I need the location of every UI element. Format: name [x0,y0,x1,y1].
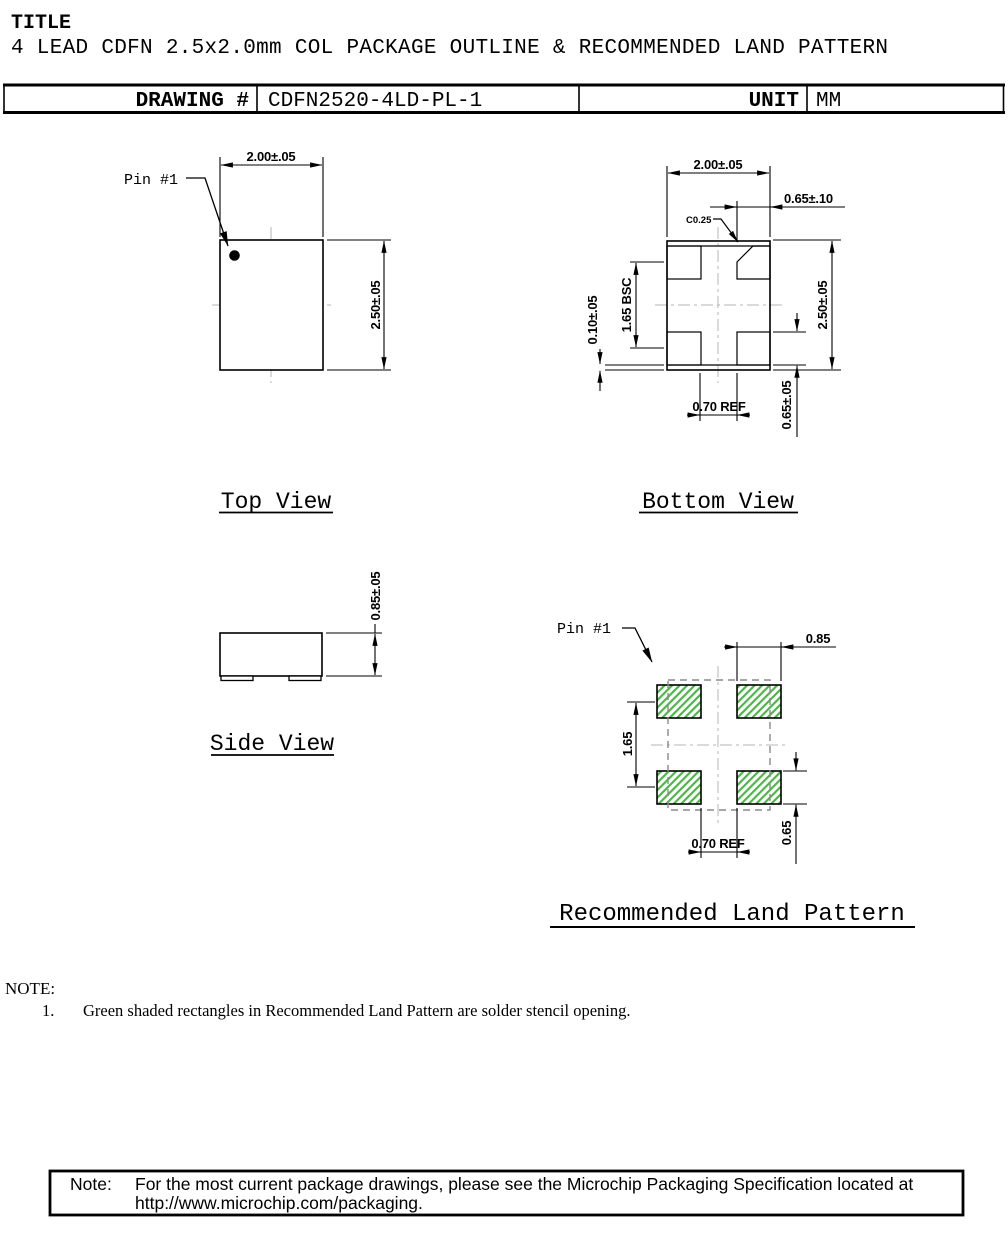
top-view-title: Top View [221,489,332,515]
stencil-pad-4 [737,685,781,718]
bottom-view-title: Bottom View [642,489,794,515]
page-title: 4 LEAD CDFN 2.5x2.0mm COL PACKAGE OUTLIN… [11,37,888,60]
bottom-dim-terminal-width: 0.65±.10 [710,191,845,242]
land-pin1-label: Pin #1 [557,621,611,638]
unit-value: MM [816,90,841,113]
footer-note-line2: http://www.microchip.com/packaging. [135,1193,423,1213]
land-pad-width-dim-text: 0.85 [806,631,831,646]
footer-note-box: Note: For the most current package drawi… [50,1171,963,1215]
top-view-dim-height: 2.50±.05 [327,240,391,370]
land-pin1-callout: Pin #1 [557,621,652,662]
thickness-dim-text: 0.85±.05 [368,572,383,621]
bottom-dim-width: 2.00±.05 [667,157,770,237]
unit-label: UNIT [749,90,799,113]
footer-note-label: Note: [70,1174,112,1194]
bottom-dim-height: 2.50±.05 [773,240,841,370]
bottom-dim-terminal-length: 0.65±.05 [773,313,806,437]
land-pad-length-dim-text: 0.65 [779,821,794,846]
chamfer-dim-text: C0.25 [686,215,712,226]
top-pin1-label: Pin #1 [124,172,178,189]
drawing-number-value: CDFN2520-4LD-PL-1 [268,90,482,113]
side-terminal-left [221,676,253,681]
top-height-dim-text: 2.50±.05 [368,281,383,330]
land-dim-pad-length: 0.65 [779,752,807,864]
pullback-dim-text: 0.10±.05 [585,296,600,345]
side-view: 0.85±.05 Side View [210,572,383,757]
bottom-width-dim-text: 2.00±.05 [694,157,743,172]
land-dim-gap: 0.70 REF [688,808,750,858]
drawing-canvas: TITLE 4 LEAD CDFN 2.5x2.0mm COL PACKAGE … [0,0,1008,1234]
bottom-view: 2.00±.05 0.65±.10 C0.25 1.65 BSC 0.10±.0… [585,157,845,515]
bottom-dim-gap: 0.70 REF [687,373,750,421]
drawing-number-label: DRAWING # [136,90,249,113]
land-dim-pad-width: 0.85 [724,631,836,681]
top-pin1-leader [186,178,228,246]
side-terminal-right [289,676,321,681]
stencil-pad-3 [737,771,781,804]
notes-section: NOTE: 1. Green shaded rectangles in Reco… [5,979,631,1020]
stencil-pad-2 [657,771,701,804]
top-view-pin1-callout: Pin #1 [124,172,228,246]
pin1-indicator-dot [229,250,240,261]
terminal-pad-4-chamfered [737,246,770,279]
land-dim-pitch: 1.65 [620,702,655,787]
info-table: DRAWING # CDFN2520-4LD-PL-1 UNIT MM [3,85,1005,113]
terminal-pad-1 [667,246,701,279]
header: TITLE 4 LEAD CDFN 2.5x2.0mm COL PACKAGE … [11,12,888,60]
bottom-gap-dim-text: 0.70 REF [692,399,746,414]
note-item-text: Green shaded rectangles in Recommended L… [83,1001,631,1020]
land-pattern-title: Recommended Land Pattern [559,901,905,928]
terminal-pad-3 [737,332,770,365]
bottom-chamfer-callout: C0.25 [686,215,738,242]
title-label: TITLE [11,12,71,35]
top-width-dim-text: 2.00±.05 [247,149,296,164]
note-item-number: 1. [42,1001,54,1020]
stencil-pad-1 [657,685,701,718]
land-gap-dim-text: 0.70 REF [691,836,745,851]
notes-heading: NOTE: [5,979,55,998]
top-view: 2.00±.05 2.50±.05 Pin #1 Top View [124,149,391,515]
terminal-pad-2 [667,332,701,365]
side-view-title: Side View [210,731,334,757]
terminal-length-dim-text: 0.65±.05 [779,381,794,430]
package-drawing-page: TITLE 4 LEAD CDFN 2.5x2.0mm COL PACKAGE … [0,0,1008,1234]
bottom-height-dim-text: 2.50±.05 [815,281,830,330]
chamfer-leader [713,219,738,242]
terminal-width-dim-text: 0.65±.10 [784,191,833,206]
side-view-body [220,633,322,676]
bottom-view-centerlines [655,227,783,383]
land-pin1-leader [622,628,652,662]
side-dim-thickness: 0.85±.05 [326,572,383,676]
land-pitch-dim-text: 1.65 [620,732,635,757]
pitch-dim-text: 1.65 BSC [619,277,634,333]
top-view-dim-width: 2.00±.05 [220,149,323,237]
land-pattern: Pin #1 0.85 1.65 0.65 [550,621,915,928]
footer-note-line1: For the most current package drawings, p… [135,1174,913,1194]
